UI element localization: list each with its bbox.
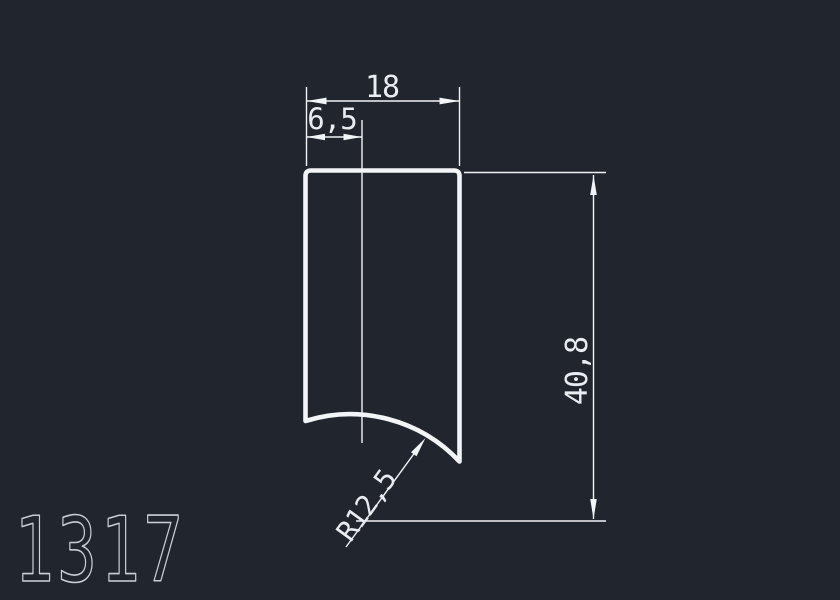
drawing-canvas: 18 6,5 40,8 R12,5 1317 xyxy=(0,0,840,600)
dim-radius-label: R12,5 xyxy=(330,464,403,548)
profile-outline xyxy=(306,171,460,462)
arrow-up-right-icon xyxy=(411,438,426,456)
cad-drawing: 18 6,5 40,8 R12,5 1317 xyxy=(0,0,840,600)
dim-offset-label: 6,5 xyxy=(307,102,356,136)
dim-width-label: 18 xyxy=(365,70,399,105)
arrow-right-icon xyxy=(440,98,460,105)
arrow-down-icon xyxy=(590,499,597,519)
part-number-label: 1317 xyxy=(14,498,186,600)
arrow-up-icon xyxy=(590,175,597,195)
dim-height-label: 40,8 xyxy=(560,337,595,405)
